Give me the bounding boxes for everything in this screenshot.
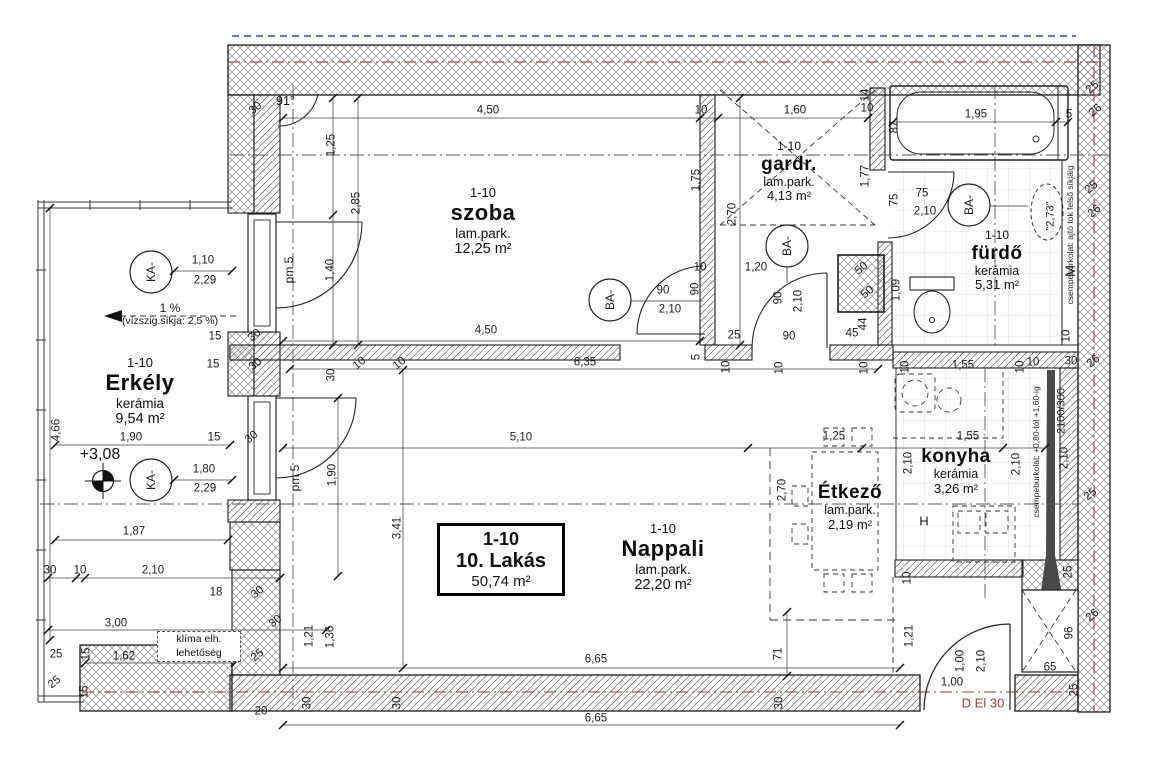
szoba-door — [637, 266, 705, 334]
room-area: 4,13 m² — [724, 189, 854, 204]
room-name: Erkély — [58, 371, 222, 396]
klima-line1: klíma elh. — [160, 633, 238, 647]
room-label-szoba: 1-10 szoba lam.park. 12,25 m² — [398, 186, 568, 257]
entry-niche — [1022, 590, 1078, 672]
room-finish: lam.park. — [724, 175, 854, 189]
room-code: 1-10 — [398, 186, 568, 201]
angle-note: 91° — [276, 94, 295, 108]
room-label-nappali: 1-10 Nappali lam.park. 22,20 m² — [578, 522, 748, 593]
room-code: 1-10 — [578, 522, 748, 537]
room-area: 12,25 m² — [398, 241, 568, 257]
room-finish: lam.park. — [398, 226, 568, 241]
room-name: szoba — [398, 201, 568, 226]
room-finish: lam.park. — [794, 503, 906, 517]
etkezo-zone-boundary — [770, 448, 895, 620]
room-name: Nappali — [578, 537, 748, 562]
klima-note: klíma elh. lehetőség — [157, 631, 241, 662]
apartment-title-box: 1-10 10. Lakás 50,74 m² — [437, 523, 565, 596]
level-note: +3,08 — [68, 446, 132, 464]
room-label-etkezo: Étkező lam.park. 2,19 m² — [794, 482, 906, 532]
room-area: 9,54 m² — [58, 411, 222, 427]
slope-value: 1 % — [95, 301, 245, 315]
level-marker — [85, 463, 121, 499]
room-name: konyha — [886, 446, 1026, 467]
room-area: 5,31 m² — [927, 278, 1067, 293]
room-name: fürdő — [927, 243, 1067, 264]
apartment-name: 10. Lakás — [442, 550, 560, 573]
floor-plan: 304,501,252,851,40101,6010141,955871,752… — [0, 0, 1163, 760]
entrance-door — [924, 624, 1010, 710]
balcony-wall-piers — [228, 95, 280, 675]
room-label-furdo: 1-10 fürdő kerámia 5,31 m² — [927, 229, 1067, 293]
bathtub — [890, 86, 1068, 160]
room-label-gardrob: 1-10 gardr. lam.park. 4,13 m² — [724, 140, 854, 204]
room-finish: kerámia — [58, 396, 222, 411]
balcony-door-upper — [248, 214, 362, 332]
room-name: Étkező — [794, 482, 906, 503]
gardrob-door — [752, 273, 827, 348]
room-finish: kerámia — [886, 467, 1026, 481]
apartment-area: 50,74 m² — [442, 573, 560, 590]
room-finish: kerámia — [927, 264, 1067, 278]
room-code: 1-10 — [58, 356, 222, 371]
room-code: 1-10 — [927, 229, 1067, 243]
room-area: 2,19 m² — [794, 518, 906, 533]
slope-note: 1 % (vízszig.síkja: 2,5 %) — [95, 301, 245, 327]
room-label-konyha: konyha kerámia 3,26 m² — [886, 446, 1026, 496]
room-area: 3,26 m² — [886, 482, 1026, 497]
room-area: 22,20 m² — [578, 577, 748, 593]
apartment-code: 1-10 — [442, 529, 560, 550]
room-finish: lam.park. — [578, 562, 748, 577]
room-name: gardr. — [724, 154, 854, 175]
room-label-erkely: 1-10 Erkély kerámia 9,54 m² — [58, 356, 222, 427]
room-code: 1-10 — [724, 140, 854, 154]
klima-line2: lehetőség — [160, 647, 238, 661]
slope-detail: (vízszig.síkja: 2,5 %) — [95, 315, 245, 327]
